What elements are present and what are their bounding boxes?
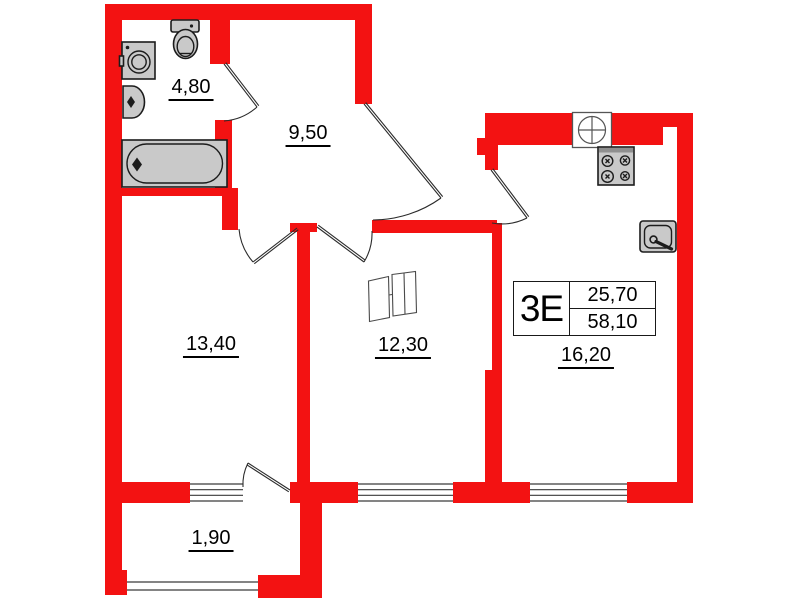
wall-segment <box>492 223 502 372</box>
wall-segment <box>105 570 127 595</box>
wall-segment <box>485 370 502 483</box>
wall-segment <box>105 482 190 503</box>
unit-areas: 25,70 58,10 <box>570 282 655 335</box>
wall-segment <box>477 138 485 155</box>
bathtub-icon <box>122 140 227 187</box>
wall-segment <box>105 4 372 20</box>
toilet-icon <box>171 20 199 59</box>
wall-segment <box>372 220 497 233</box>
wall-notch <box>663 127 677 145</box>
wall-segment <box>677 113 693 503</box>
kitchen-inner-door-swing <box>491 169 529 224</box>
unit-info-table: 3Е 25,70 58,10 <box>513 281 656 336</box>
wall-segment <box>210 20 230 64</box>
wall-segment <box>222 188 238 230</box>
room-area-label-hallway: 9,50 <box>286 122 331 147</box>
room-area-label-bathroom: 4,80 <box>169 76 214 101</box>
kitchen-sink-icon <box>640 221 676 252</box>
unit-type: 3Е <box>514 282 570 335</box>
stove-icon <box>598 147 634 185</box>
wall-segment <box>355 20 372 104</box>
bathroom-door-swing <box>224 63 259 121</box>
balcony-door-swing <box>243 463 290 492</box>
floor-plan: 4,80 9,50 13,40 12,30 16,20 1,90 3Е 25,7… <box>0 0 800 600</box>
washing-machine-icon <box>120 42 156 79</box>
window-kitchen-living <box>530 484 627 501</box>
wall-segment <box>122 188 232 196</box>
room-2-door-swing <box>317 225 372 262</box>
room-area-label-room-2: 12,30 <box>375 334 431 359</box>
wardrobe-icon <box>369 272 417 322</box>
room-area-label-balcony: 1,90 <box>189 527 234 552</box>
room-area-label-bedroom: 13,40 <box>183 333 239 358</box>
wall-segment <box>290 482 358 503</box>
ventilation-shaft-icon <box>573 113 612 148</box>
wall-segment <box>627 482 693 503</box>
floor-plan-drawing <box>0 0 800 600</box>
wall-segment <box>453 482 530 503</box>
room-area-label-kitchen-living: 16,20 <box>558 344 614 369</box>
wall-segment <box>297 230 310 483</box>
hallway-kitchen-door-swing <box>364 103 443 220</box>
window-balcony-glazing <box>127 582 258 590</box>
window-room-2 <box>358 484 453 501</box>
wall-segment <box>105 4 122 595</box>
unit-area-bottom: 58,10 <box>570 309 655 335</box>
unit-area-top: 25,70 <box>570 282 655 309</box>
wall-segment <box>258 575 322 598</box>
wash-basin-icon <box>123 86 145 118</box>
window-bedroom-balcony <box>190 484 243 501</box>
bedroom-door-swing <box>239 228 298 264</box>
